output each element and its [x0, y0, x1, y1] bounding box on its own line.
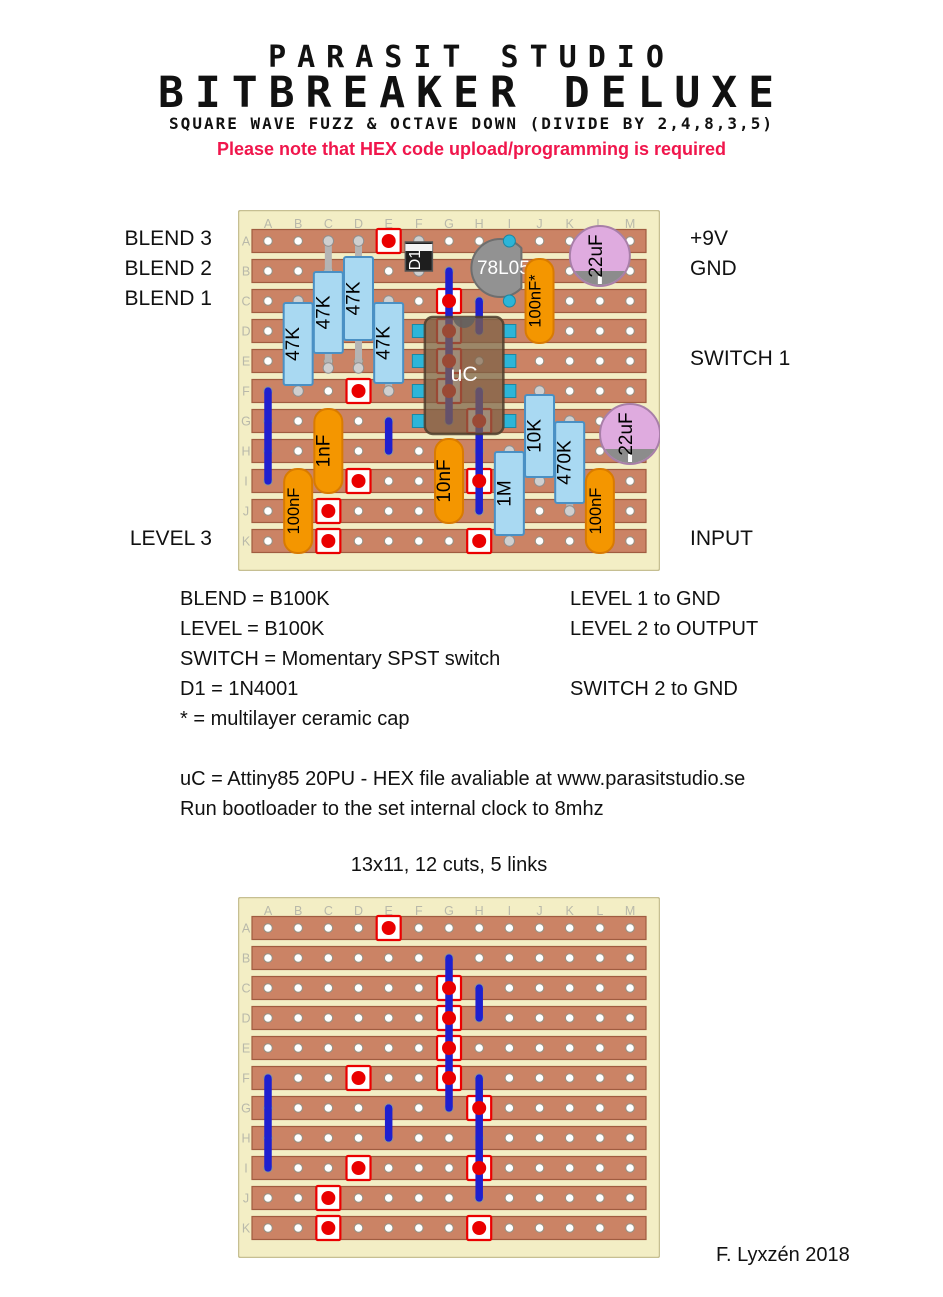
hole: [415, 507, 424, 516]
hole: [535, 537, 544, 546]
stripboard-svg: ABCDEFGHIJKLMABCDEFGHIJK47K47K47K47KD178…: [238, 210, 660, 571]
uc-note-line2: Run bootloader to the set internal clock…: [180, 798, 604, 821]
svg-text:B: B: [242, 952, 250, 966]
cut-dot: [321, 1191, 335, 1205]
hole: [626, 1014, 635, 1023]
svg-text:D: D: [241, 1012, 250, 1026]
svg-text:100nF*: 100nF*: [527, 274, 545, 328]
hole: [626, 297, 635, 306]
hole: [535, 954, 544, 963]
hole: [626, 327, 635, 336]
svg-text:47K: 47K: [374, 326, 395, 360]
hole: [626, 477, 635, 486]
hole: [475, 924, 484, 933]
hole: [626, 357, 635, 366]
hole: [475, 1044, 484, 1053]
hole: [445, 1194, 454, 1203]
hole: [535, 1044, 544, 1053]
hole: [324, 924, 333, 933]
hole: [294, 1164, 303, 1173]
svg-text:J: J: [536, 217, 542, 231]
leg-pad: [323, 363, 333, 373]
hole: [324, 954, 333, 963]
hole: [294, 267, 303, 276]
legend-level: LEVEL = B100K: [180, 618, 324, 641]
legend-switch: SWITCH = Momentary SPST switch: [180, 648, 500, 671]
component-470K: 470K: [555, 422, 585, 503]
hole: [354, 1194, 363, 1203]
svg-text:A: A: [264, 217, 273, 231]
hole: [264, 984, 273, 993]
hole: [565, 357, 574, 366]
component-uC: uC: [412, 306, 516, 434]
svg-text:M: M: [625, 217, 635, 231]
svg-text:B: B: [294, 217, 302, 231]
hole: [565, 1134, 574, 1143]
hole: [596, 1014, 605, 1023]
component-47K: 47K: [313, 272, 343, 353]
ic-pin: [412, 385, 425, 398]
hole: [354, 1014, 363, 1023]
ic-pin: [412, 325, 425, 338]
pad-label-blend-3: BLEND 3: [88, 227, 212, 251]
component-100nF: 100nF: [586, 469, 614, 553]
regulator-pin: [503, 235, 515, 247]
cut-dot: [321, 534, 335, 548]
hole: [264, 507, 273, 516]
hole: [294, 237, 303, 246]
svg-text:C: C: [241, 295, 250, 309]
cut-dot: [382, 234, 396, 248]
hole: [324, 1134, 333, 1143]
hole: [264, 1224, 273, 1233]
hole: [384, 1224, 393, 1233]
hole: [565, 537, 574, 546]
page-title: BITBREAKER DELUXE: [0, 68, 943, 118]
hole: [415, 1194, 424, 1203]
svg-text:G: G: [241, 415, 251, 429]
hole: [264, 237, 273, 246]
cut-dot: [472, 1221, 486, 1235]
hole: [294, 447, 303, 456]
svg-text:22uF: 22uF: [616, 412, 637, 455]
component-10nF: 10nF: [434, 439, 463, 523]
svg-text:D: D: [241, 325, 250, 339]
hole: [324, 387, 333, 396]
hole: [294, 954, 303, 963]
hole: [535, 1164, 544, 1173]
pad-label-blend-2: BLEND 2: [88, 257, 212, 281]
svg-text:G: G: [444, 217, 454, 231]
pad-label-input: INPUT: [690, 527, 753, 551]
hole: [505, 984, 514, 993]
hole: [505, 1104, 514, 1113]
component-1M: 1M: [494, 452, 524, 535]
hole: [505, 1164, 514, 1173]
leg-pad: [353, 236, 363, 246]
svg-text:I: I: [244, 475, 247, 489]
svg-text:G: G: [241, 1102, 251, 1116]
hole: [535, 1014, 544, 1023]
pad-label-9v: +9V: [690, 227, 728, 251]
hole: [415, 1044, 424, 1053]
hex-upload-note: Please note that HEX code upload/program…: [0, 139, 943, 160]
hole: [505, 1014, 514, 1023]
hole: [505, 1044, 514, 1053]
legend-level1: LEVEL 1 to GND: [570, 588, 720, 611]
hole: [565, 954, 574, 963]
hole: [596, 1224, 605, 1233]
cut-dot: [442, 1041, 456, 1055]
hole: [626, 1164, 635, 1173]
svg-text:H: H: [241, 445, 250, 459]
pad-label-blend-1: BLEND 1: [88, 287, 212, 311]
hole: [596, 984, 605, 993]
hole: [626, 1194, 635, 1203]
svg-text:I: I: [244, 1162, 247, 1176]
hole: [565, 1074, 574, 1083]
hole: [415, 954, 424, 963]
cut-dot: [352, 474, 366, 488]
hole: [294, 924, 303, 933]
svg-text:F: F: [242, 385, 250, 399]
hole: [626, 537, 635, 546]
hole: [626, 387, 635, 396]
svg-text:C: C: [324, 217, 333, 231]
hole: [445, 537, 454, 546]
hole: [626, 954, 635, 963]
hole: [596, 954, 605, 963]
hole: [535, 357, 544, 366]
cuts-links-caption: 13x11, 12 cuts, 5 links: [238, 854, 660, 877]
component-D1: D1: [405, 242, 432, 271]
author-credit: F. Lyxzén 2018: [716, 1244, 850, 1267]
hole: [294, 1014, 303, 1023]
hole: [294, 417, 303, 426]
hole: [535, 237, 544, 246]
leg-pad: [323, 236, 333, 246]
hole: [626, 1224, 635, 1233]
hole: [596, 1164, 605, 1173]
leg-pad: [565, 506, 575, 516]
svg-text:J: J: [243, 505, 249, 519]
hole: [505, 924, 514, 933]
svg-text:47K: 47K: [344, 281, 365, 315]
hole: [626, 924, 635, 933]
legend-level2: LEVEL 2 to OUTPUT: [570, 618, 758, 641]
hole: [445, 1224, 454, 1233]
component-1nF: 1nF: [313, 409, 342, 493]
legend-switch2: SWITCH 2 to GND: [570, 678, 738, 701]
hole: [294, 1134, 303, 1143]
ic-pin: [503, 385, 516, 398]
hole: [445, 924, 454, 933]
hole: [354, 984, 363, 993]
hole: [384, 1164, 393, 1173]
hole: [535, 1194, 544, 1203]
component-47K: 47K: [283, 303, 313, 385]
pad-label-gnd: GND: [690, 257, 737, 281]
hole: [596, 924, 605, 933]
cut-dot: [472, 1101, 486, 1115]
svg-text:J: J: [243, 1192, 249, 1206]
hole: [596, 1134, 605, 1143]
hole: [415, 537, 424, 546]
hole: [535, 984, 544, 993]
cut-dot: [352, 1161, 366, 1175]
svg-text:100nF: 100nF: [285, 488, 303, 535]
hole: [324, 1164, 333, 1173]
cut-dot: [472, 534, 486, 548]
page-subtitle: SQUARE WAVE FUZZ & OCTAVE DOWN (DIVIDE B…: [0, 114, 943, 133]
cut-dot: [321, 504, 335, 518]
hole: [264, 357, 273, 366]
cut-dot: [382, 921, 396, 935]
hole: [415, 1074, 424, 1083]
hole: [475, 954, 484, 963]
hole: [384, 477, 393, 486]
hole: [445, 1164, 454, 1173]
hole: [565, 924, 574, 933]
hole: [415, 1014, 424, 1023]
cut-dot: [472, 1161, 486, 1175]
hole: [445, 237, 454, 246]
stripboard-svg: ABCDEFGHIJKLMABCDEFGHIJK: [238, 897, 660, 1258]
hole: [535, 1074, 544, 1083]
hole: [354, 417, 363, 426]
component-10K: 10K: [525, 395, 555, 477]
hole: [264, 1194, 273, 1203]
svg-text:H: H: [475, 217, 484, 231]
hole: [354, 507, 363, 516]
hole: [415, 447, 424, 456]
hole: [596, 1044, 605, 1053]
legend-asterisk: * = multilayer ceramic cap: [180, 708, 410, 731]
hole: [354, 954, 363, 963]
hole: [415, 477, 424, 486]
cut-dot: [442, 1011, 456, 1025]
cut-dot: [442, 294, 456, 308]
hole: [565, 1194, 574, 1203]
leg-pad: [504, 536, 514, 546]
svg-text:uC: uC: [451, 363, 478, 386]
svg-text:78L05: 78L05: [477, 258, 530, 279]
hole: [324, 1074, 333, 1083]
hole: [384, 1194, 393, 1203]
ic-pin: [412, 355, 425, 368]
hole: [384, 267, 393, 276]
hole: [565, 297, 574, 306]
hole: [264, 537, 273, 546]
hole: [415, 1134, 424, 1143]
hole: [384, 1014, 393, 1023]
hole: [596, 387, 605, 396]
hole: [505, 954, 514, 963]
hole: [565, 1224, 574, 1233]
hole: [505, 1074, 514, 1083]
hole: [565, 387, 574, 396]
component-47K: 47K: [374, 303, 404, 383]
hole: [596, 297, 605, 306]
legend-blend: BLEND = B100K: [180, 588, 330, 611]
svg-text:D: D: [354, 217, 363, 231]
pad-label-level-3: LEVEL 3: [88, 527, 212, 551]
ic-pin: [503, 325, 516, 338]
hole: [535, 507, 544, 516]
component-47K: 47K: [344, 257, 374, 340]
hole: [264, 954, 273, 963]
hole: [626, 1134, 635, 1143]
component-100nF: 100nF*: [526, 259, 554, 343]
hole: [626, 1074, 635, 1083]
hole: [384, 507, 393, 516]
hole: [294, 1224, 303, 1233]
svg-text:F: F: [242, 1072, 250, 1086]
hole: [384, 537, 393, 546]
hole: [415, 1164, 424, 1173]
hole: [354, 1224, 363, 1233]
legend-d1: D1 = 1N4001: [180, 678, 298, 701]
svg-text:10nF: 10nF: [434, 459, 455, 502]
hole: [264, 267, 273, 276]
hole: [294, 984, 303, 993]
hole: [565, 984, 574, 993]
hole: [264, 1044, 273, 1053]
hole: [415, 924, 424, 933]
hole: [565, 327, 574, 336]
hole: [596, 1074, 605, 1083]
hole: [415, 984, 424, 993]
hole: [535, 1134, 544, 1143]
svg-text:I: I: [508, 217, 511, 231]
cut-dot: [472, 474, 486, 488]
hole: [294, 1074, 303, 1083]
hole: [626, 1104, 635, 1113]
hole: [415, 1104, 424, 1113]
hole: [626, 507, 635, 516]
hole: [384, 984, 393, 993]
hole: [324, 1104, 333, 1113]
ic-pin: [503, 355, 516, 368]
hole: [264, 924, 273, 933]
hole: [535, 924, 544, 933]
svg-text:D1: D1: [407, 250, 424, 271]
hole: [324, 984, 333, 993]
hole: [354, 537, 363, 546]
hole: [505, 1194, 514, 1203]
hole: [354, 1134, 363, 1143]
hole: [354, 924, 363, 933]
regulator-pin: [503, 295, 515, 307]
svg-text:100nF: 100nF: [587, 488, 605, 535]
ic-pin: [412, 415, 425, 428]
hole: [475, 237, 484, 246]
cut-dot: [442, 1071, 456, 1085]
hole: [384, 1044, 393, 1053]
hole: [324, 1014, 333, 1023]
hole: [626, 984, 635, 993]
hole: [565, 1104, 574, 1113]
svg-text:47K: 47K: [283, 327, 304, 361]
svg-text:470K: 470K: [555, 440, 576, 485]
hole: [596, 1194, 605, 1203]
svg-text:K: K: [242, 535, 251, 549]
svg-text:F: F: [415, 217, 423, 231]
ic-pin: [503, 415, 516, 428]
hole: [505, 1134, 514, 1143]
svg-text:22uF: 22uF: [586, 234, 607, 277]
hole: [354, 1104, 363, 1113]
svg-text:A: A: [242, 235, 251, 249]
hole: [354, 1044, 363, 1053]
svg-text:C: C: [241, 982, 250, 996]
hole: [324, 1044, 333, 1053]
hole: [445, 1134, 454, 1143]
hole: [596, 357, 605, 366]
leg-pad: [293, 386, 303, 396]
hole: [505, 1224, 514, 1233]
svg-text:1nF: 1nF: [313, 435, 334, 468]
svg-text:E: E: [242, 1042, 250, 1056]
hole: [384, 1074, 393, 1083]
stripboard-bottom: ABCDEFGHIJKLMABCDEFGHIJK: [238, 897, 660, 1258]
cut-dot: [352, 1071, 366, 1085]
hole: [565, 1044, 574, 1053]
hole: [264, 1014, 273, 1023]
cut-dot: [442, 981, 456, 995]
hole: [294, 1194, 303, 1203]
hole: [294, 1104, 303, 1113]
svg-text:B: B: [242, 265, 250, 279]
hole: [384, 954, 393, 963]
hole: [264, 297, 273, 306]
hole: [535, 1104, 544, 1113]
cut-dot: [321, 1221, 335, 1235]
hole: [565, 1014, 574, 1023]
hole: [626, 1044, 635, 1053]
hole: [264, 327, 273, 336]
component-100nF: 100nF: [284, 469, 312, 553]
svg-text:K: K: [566, 217, 575, 231]
hole: [415, 1224, 424, 1233]
hole: [565, 1164, 574, 1173]
hole: [596, 1104, 605, 1113]
cut-dot: [352, 384, 366, 398]
svg-text:E: E: [242, 355, 250, 369]
hole: [596, 327, 605, 336]
svg-text:A: A: [242, 922, 251, 936]
hole: [415, 297, 424, 306]
pad-label-switch-1: SWITCH 1: [690, 347, 790, 371]
hole: [535, 1224, 544, 1233]
leg-pad: [353, 363, 363, 373]
uc-note-line1: uC = Attiny85 20PU - HEX file avaliable …: [180, 768, 745, 791]
svg-text:47K: 47K: [313, 295, 334, 329]
svg-text:10K: 10K: [525, 419, 546, 453]
svg-text:K: K: [242, 1222, 251, 1236]
hole: [294, 1044, 303, 1053]
svg-text:H: H: [241, 1132, 250, 1146]
hole: [354, 447, 363, 456]
leg-pad: [383, 386, 393, 396]
svg-text:1M: 1M: [494, 480, 515, 506]
stripboard-top: ABCDEFGHIJKLMABCDEFGHIJK47K47K47K47KD178…: [238, 210, 660, 571]
